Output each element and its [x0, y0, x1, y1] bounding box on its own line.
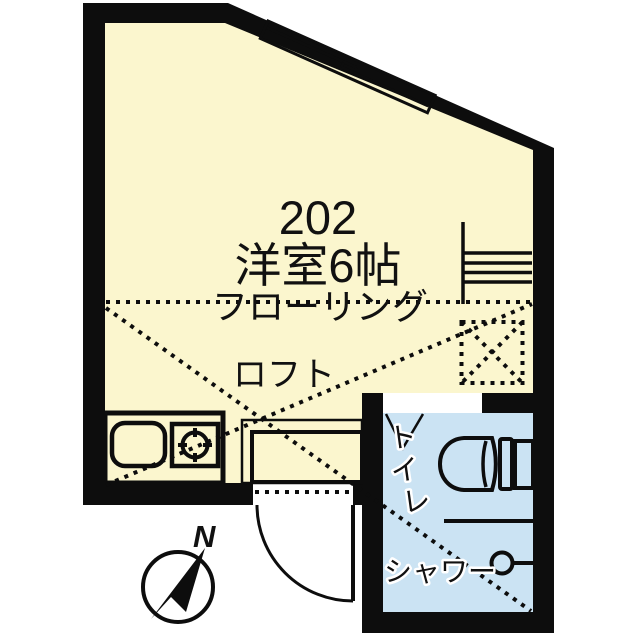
entrance-door-arc [257, 505, 353, 601]
unit-number-label: 202 [279, 191, 357, 244]
shower-label: シャワー [384, 556, 496, 587]
north-label: N [193, 519, 216, 554]
floor-plan-202: N 202 洋室6帖 フローリング ロフト ト イ レ シャワー [0, 0, 640, 640]
toilet-door-opening [383, 393, 482, 413]
floor-plan-image: N 202 洋室6帖 フローリング ロフト ト イ レ シャワー [0, 0, 640, 640]
flooring-label: フローリング [212, 286, 428, 327]
loft-label: ロフト [233, 356, 335, 394]
compass-icon: N [143, 519, 216, 622]
room-type-label: 洋室6帖 [234, 239, 401, 292]
